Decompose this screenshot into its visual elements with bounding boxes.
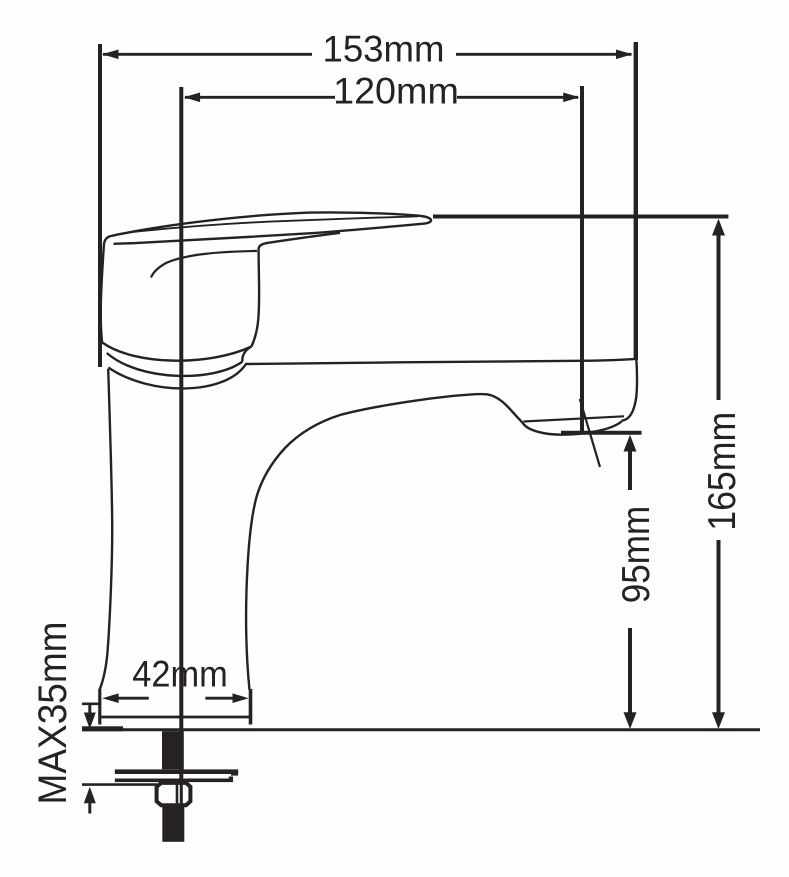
svg-text:165mm: 165mm xyxy=(699,412,743,531)
svg-text:42mm: 42mm xyxy=(132,653,228,694)
svg-text:120mm: 120mm xyxy=(333,70,459,112)
svg-text:95mm: 95mm xyxy=(613,506,657,604)
svg-text:MAX35mm: MAX35mm xyxy=(31,622,76,805)
svg-text:153mm: 153mm xyxy=(322,28,444,69)
